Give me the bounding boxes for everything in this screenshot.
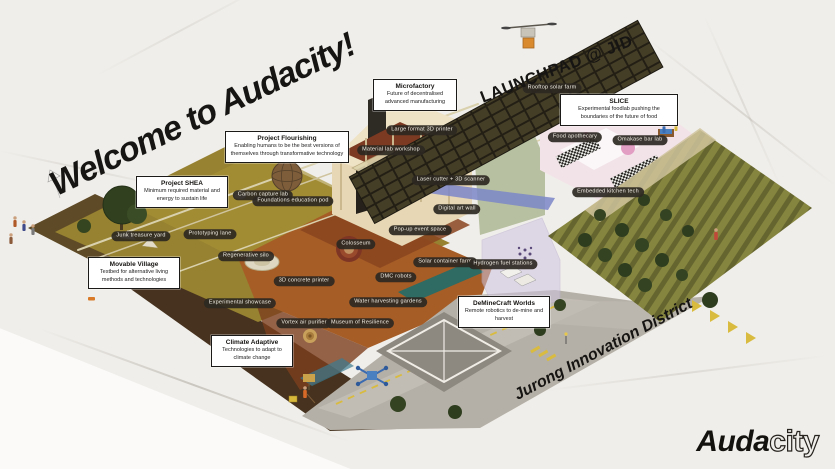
- callout-project-flourishing: Project Flourishing Enabling humans to b…: [225, 131, 349, 163]
- callout-movable-village: Movable Village Testbed for alternative …: [88, 257, 180, 289]
- logo-outline-part: city: [769, 425, 819, 458]
- map-label-regenerative-silo: Regenerative silo: [218, 251, 274, 261]
- map-label-material-lab-workshop: Material lab workshop: [357, 145, 425, 155]
- map-label-pop-up-event-space: Pop-up event space: [389, 225, 452, 235]
- callout-title: Project SHEA: [140, 180, 224, 188]
- map-label-embedded-kitchen-tech: Embedded kitchen tech: [572, 187, 644, 197]
- map-label-museum-of-resilience: Museum of Resilience: [326, 318, 394, 328]
- audacity-logo: Audacity: [696, 427, 819, 457]
- callout-description: Enabling humans to be the best versions …: [229, 143, 345, 158]
- vortex-structure: [303, 329, 317, 343]
- map-label-water-harvesting-gardens: Water harvesting gardens: [349, 297, 427, 307]
- map-label-omakase-bar-lab: Omakase bar lab: [613, 135, 668, 145]
- callout-microfactory: Microfactory Future of decentralised adv…: [373, 79, 457, 111]
- callout-description: Experimental foodlab pushing the boundar…: [564, 106, 674, 121]
- map-label-food-apothecary: Food apothecary: [548, 132, 602, 142]
- callout-description: Remote robotics to de-mine and harvest: [462, 308, 546, 323]
- delivery-drone-icon: [501, 23, 557, 48]
- map-label-junk-treasure-yard: Junk treasure yard: [111, 231, 170, 241]
- map-label-experimental-showcase: Experimental showcase: [204, 298, 276, 308]
- map-label-prototyping-lane: Prototyping lane: [184, 229, 237, 239]
- map-label-vortex-air-purifier: Vortex air purifier: [276, 318, 331, 328]
- callout-description: Technologies to adapt to climate change: [215, 347, 289, 362]
- map-label-colosseum: Colosseum: [336, 239, 375, 249]
- map-label-laser-cutter-3d-scanner: Laser cutter + 3D scanner: [412, 175, 490, 185]
- callout-climate-adaptive: Climate Adaptive Technologies to adapt t…: [211, 335, 293, 367]
- map-label-3d-concrete-printer: 3D concrete printer: [274, 276, 335, 286]
- callout-project-shea: Project SHEA Minimum required material a…: [136, 176, 228, 208]
- callout-title: Project Flourishing: [229, 135, 345, 143]
- callout-title: Movable Village: [92, 261, 176, 269]
- callout-slice: SLICE Experimental foodlab pushing the b…: [560, 94, 678, 126]
- callout-description: Testbed for alternative living methods a…: [92, 269, 176, 284]
- callout-title: Climate Adaptive: [215, 339, 289, 347]
- callout-description: Future of decentralised advanced manufac…: [377, 91, 453, 106]
- callout-deminecraft-worlds: DeMineCraft Worlds Remote robotics to de…: [458, 296, 550, 328]
- callout-description: Minimum required material and energy to …: [140, 188, 224, 203]
- map-label-hydrogen-fuel-stations: Hydrogen fuel stations: [468, 259, 537, 269]
- map-label-digital-art-wall: Digital art wall: [433, 204, 480, 214]
- map-label-foundations-education-pod: Foundations education pod: [252, 196, 333, 206]
- callout-title: Microfactory: [377, 83, 453, 91]
- logo-solid-part: Auda: [696, 425, 769, 458]
- map-label-solar-container-farm: Solar container farm: [413, 257, 477, 267]
- map-label-dmc-robots: DMC robots: [375, 272, 416, 282]
- poster-stage: Rooftop solar farm Large format 3D print…: [0, 0, 835, 469]
- callout-title: DeMineCraft Worlds: [462, 300, 546, 308]
- callout-title: SLICE: [564, 98, 674, 106]
- map-label-large-format-3d-printer: Large format 3D printer: [386, 125, 457, 135]
